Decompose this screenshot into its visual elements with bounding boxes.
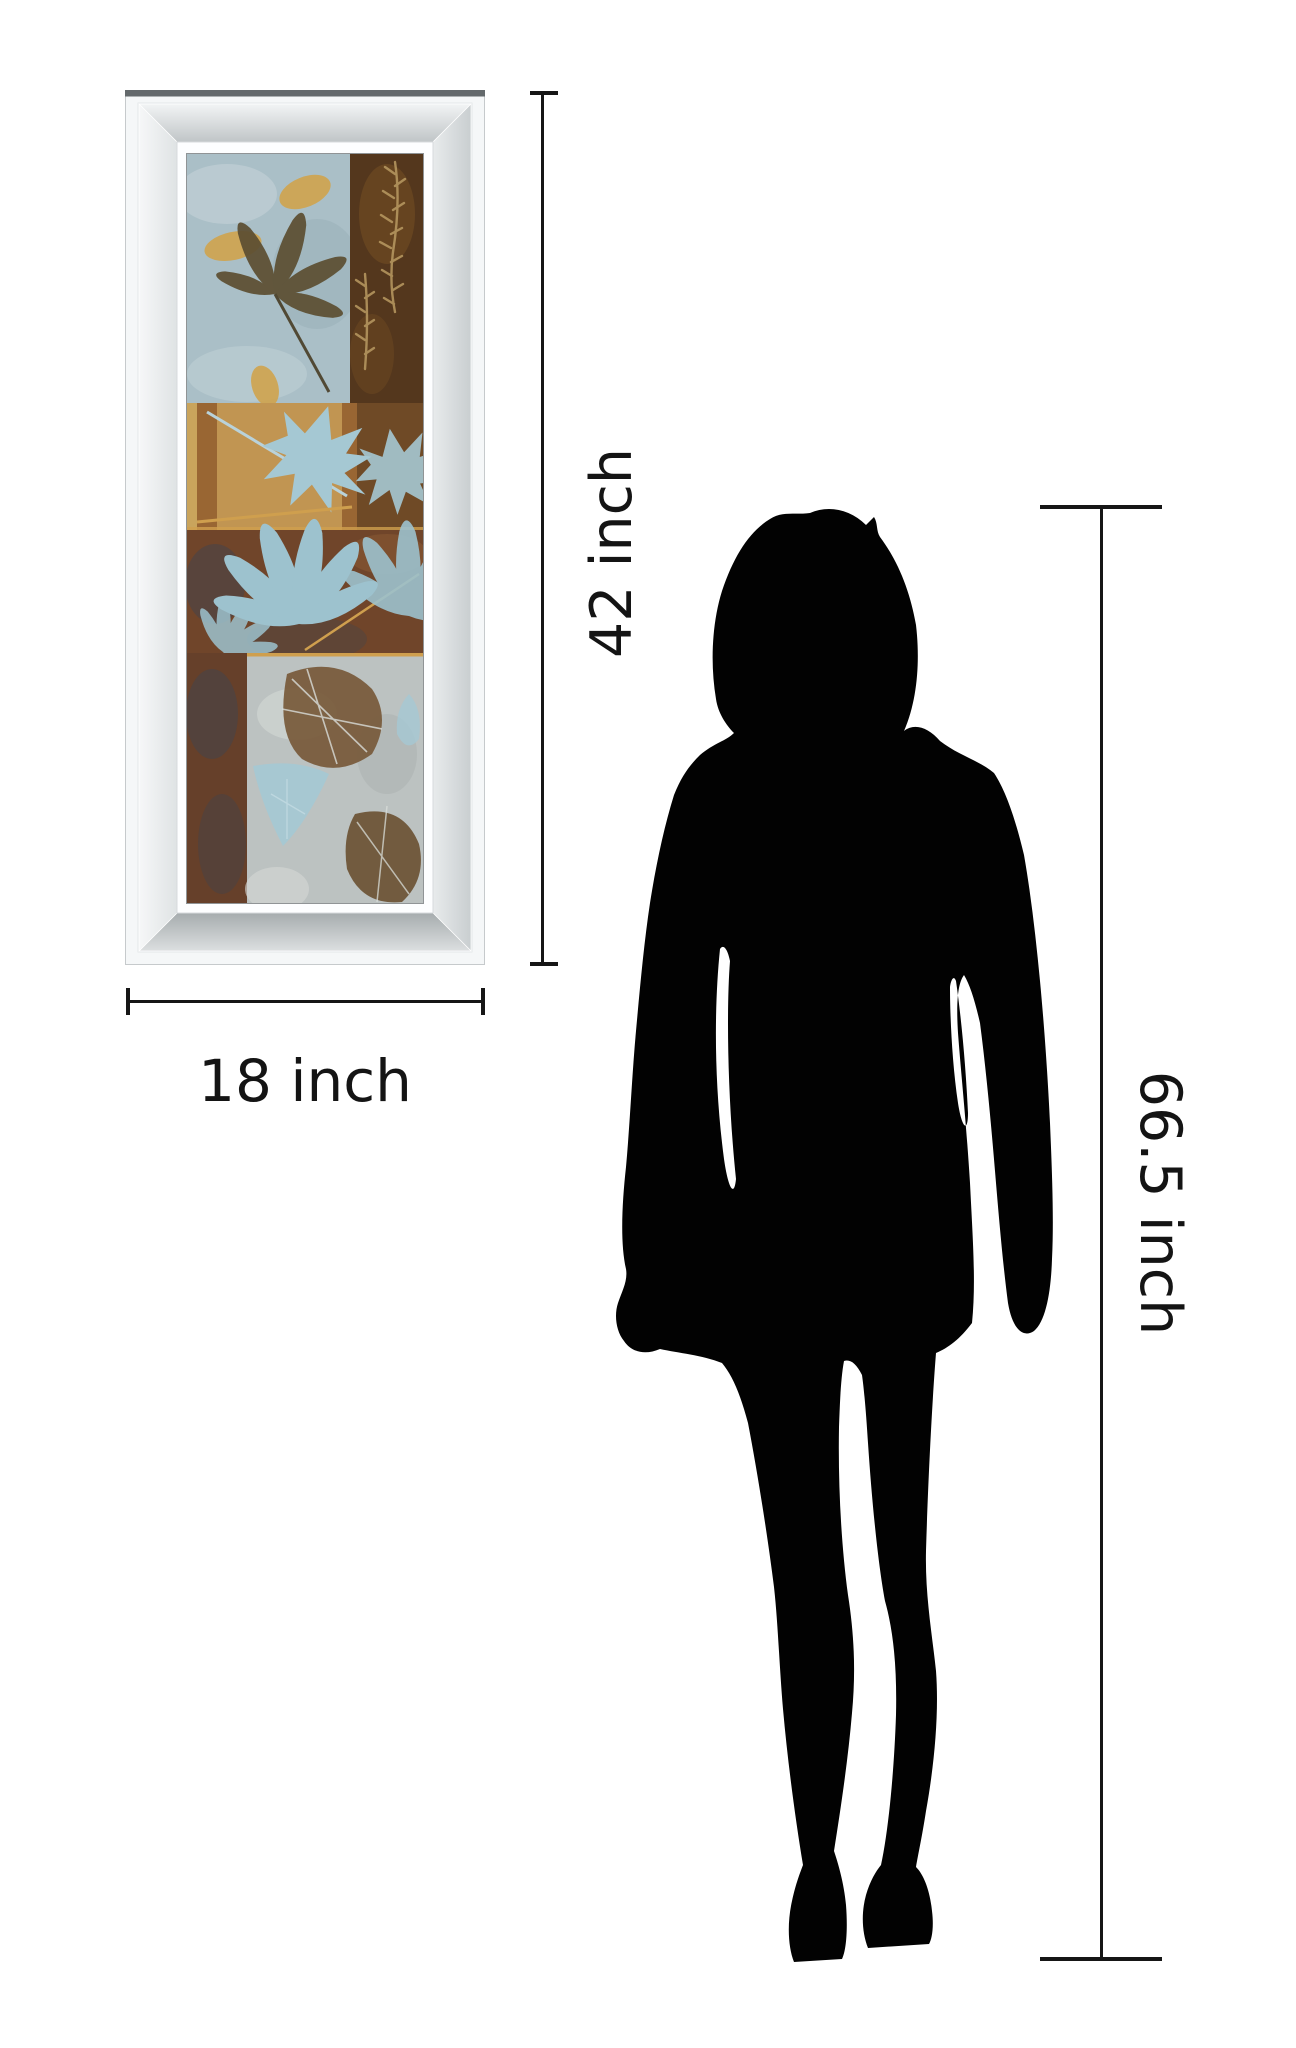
width-dim-line xyxy=(128,1000,484,1003)
product-dimension-image: 42 inch 18 inch 66.5 inch xyxy=(0,0,1296,2048)
woman-silhouette-shape xyxy=(616,509,1053,1962)
framed-wall-art xyxy=(125,90,485,965)
height-dim-top-tick xyxy=(530,91,558,95)
person-dim-bottom-tick xyxy=(1040,1957,1162,1961)
collage-section-bottom xyxy=(186,653,423,911)
width-dim-right-tick xyxy=(481,988,485,1015)
person-dim-line xyxy=(1100,507,1103,1959)
person-height-label: 66.5 inch xyxy=(1127,1071,1193,1335)
frame-top-edge xyxy=(125,90,485,97)
collage-section-top xyxy=(177,154,423,420)
frame-width-label: 18 inch xyxy=(198,1047,412,1115)
height-dim-bottom-tick xyxy=(530,962,558,966)
collage-section-maple xyxy=(187,393,453,530)
height-dim-line xyxy=(541,93,544,965)
woman-silhouette xyxy=(598,503,1073,1968)
